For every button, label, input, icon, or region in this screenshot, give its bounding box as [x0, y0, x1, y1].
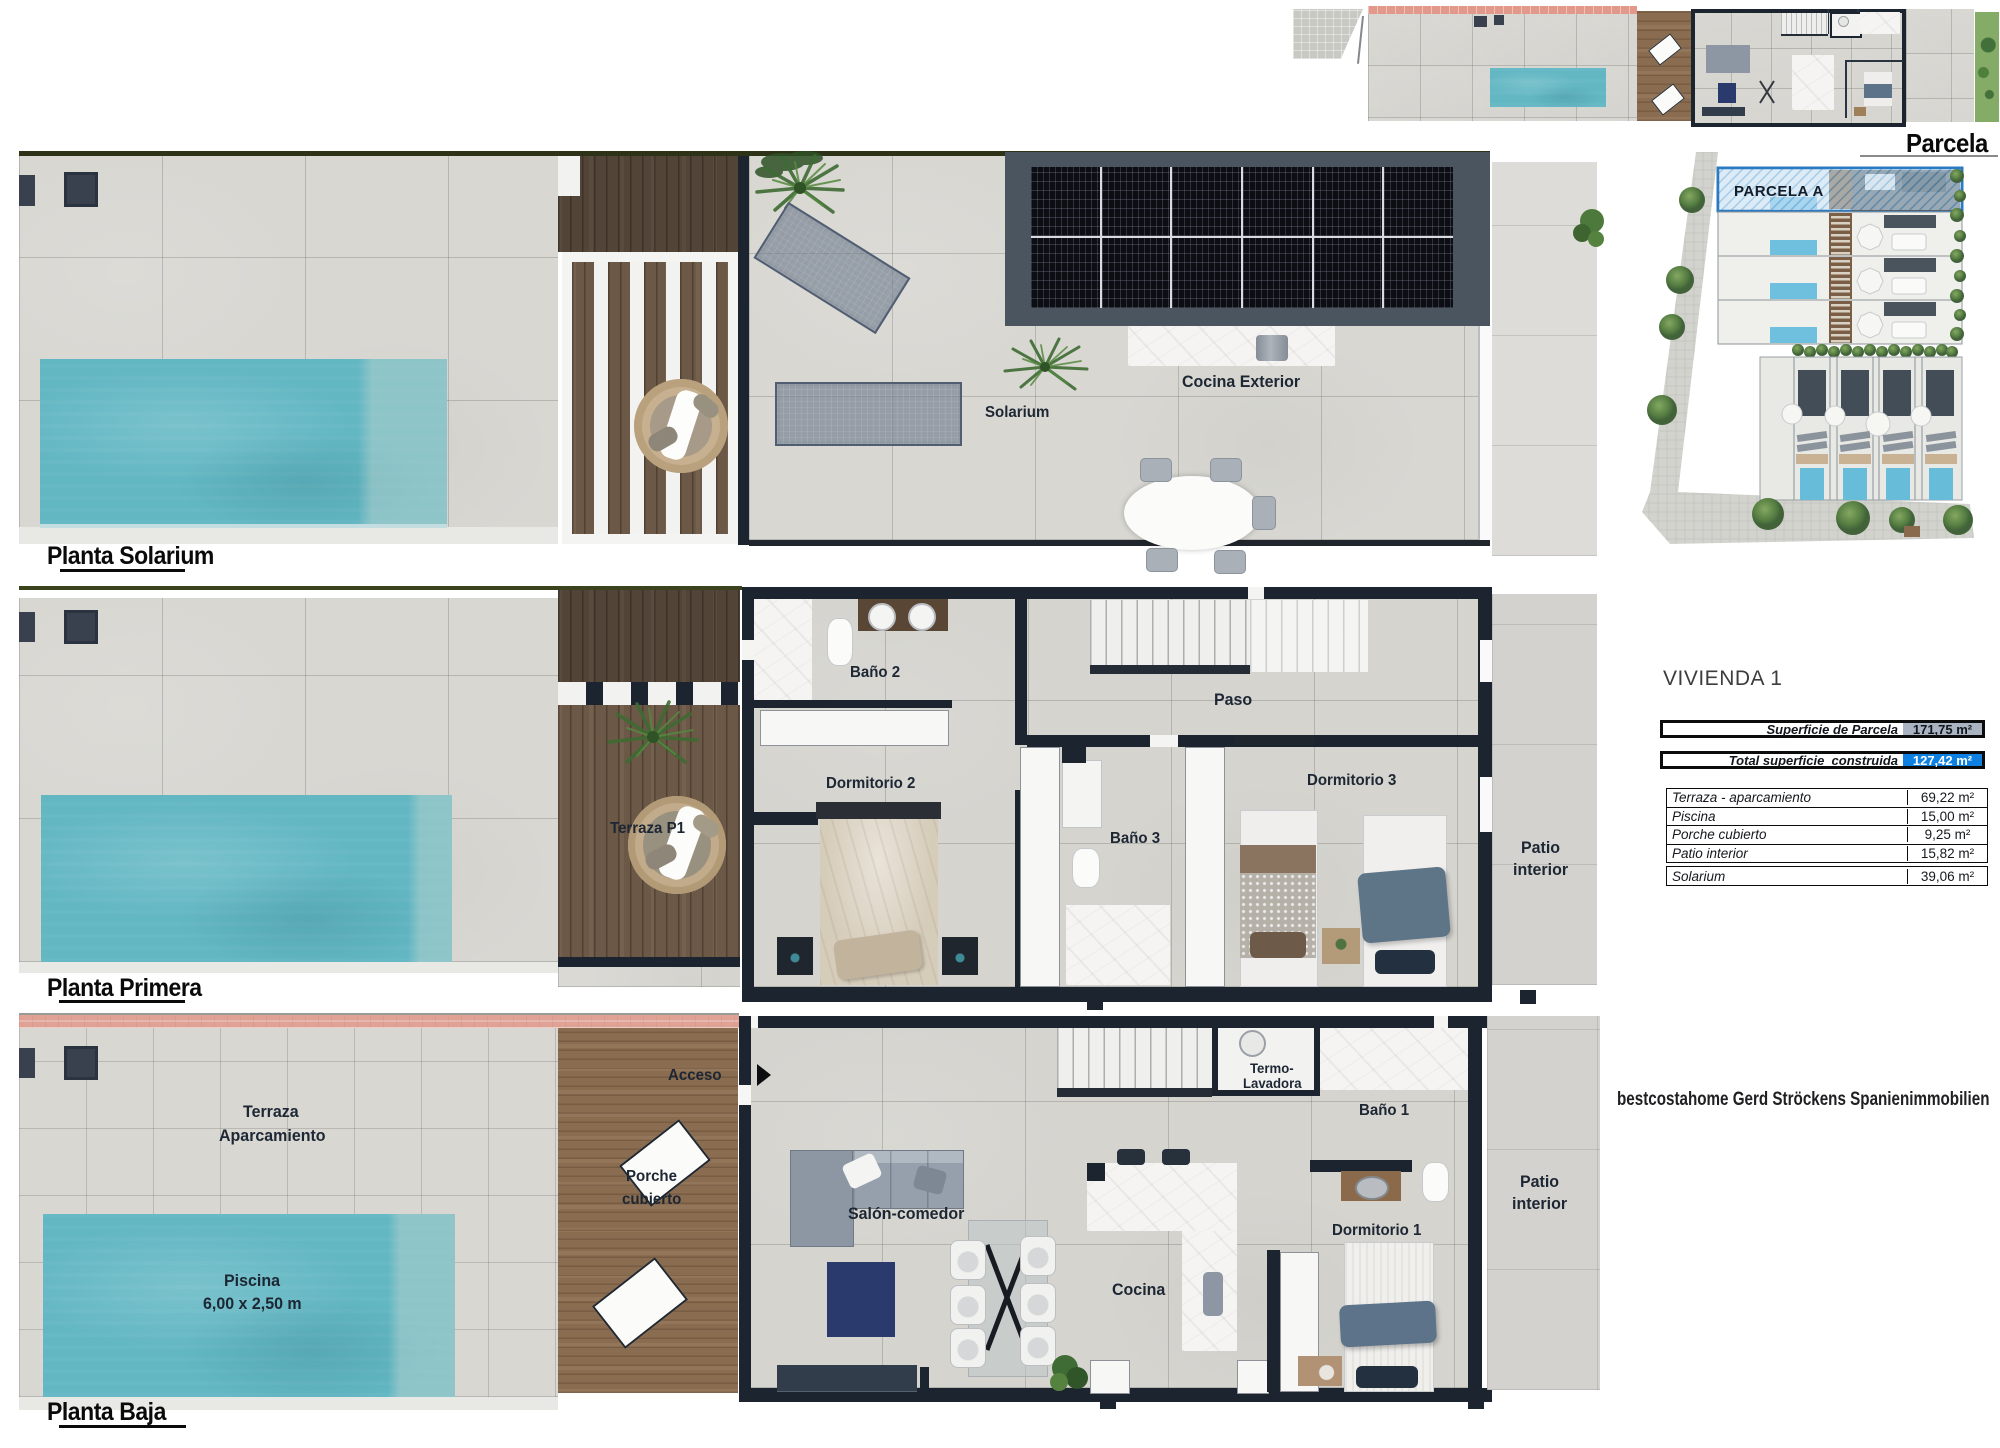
svg-text:PARCELA A: PARCELA A [1734, 183, 1824, 200]
